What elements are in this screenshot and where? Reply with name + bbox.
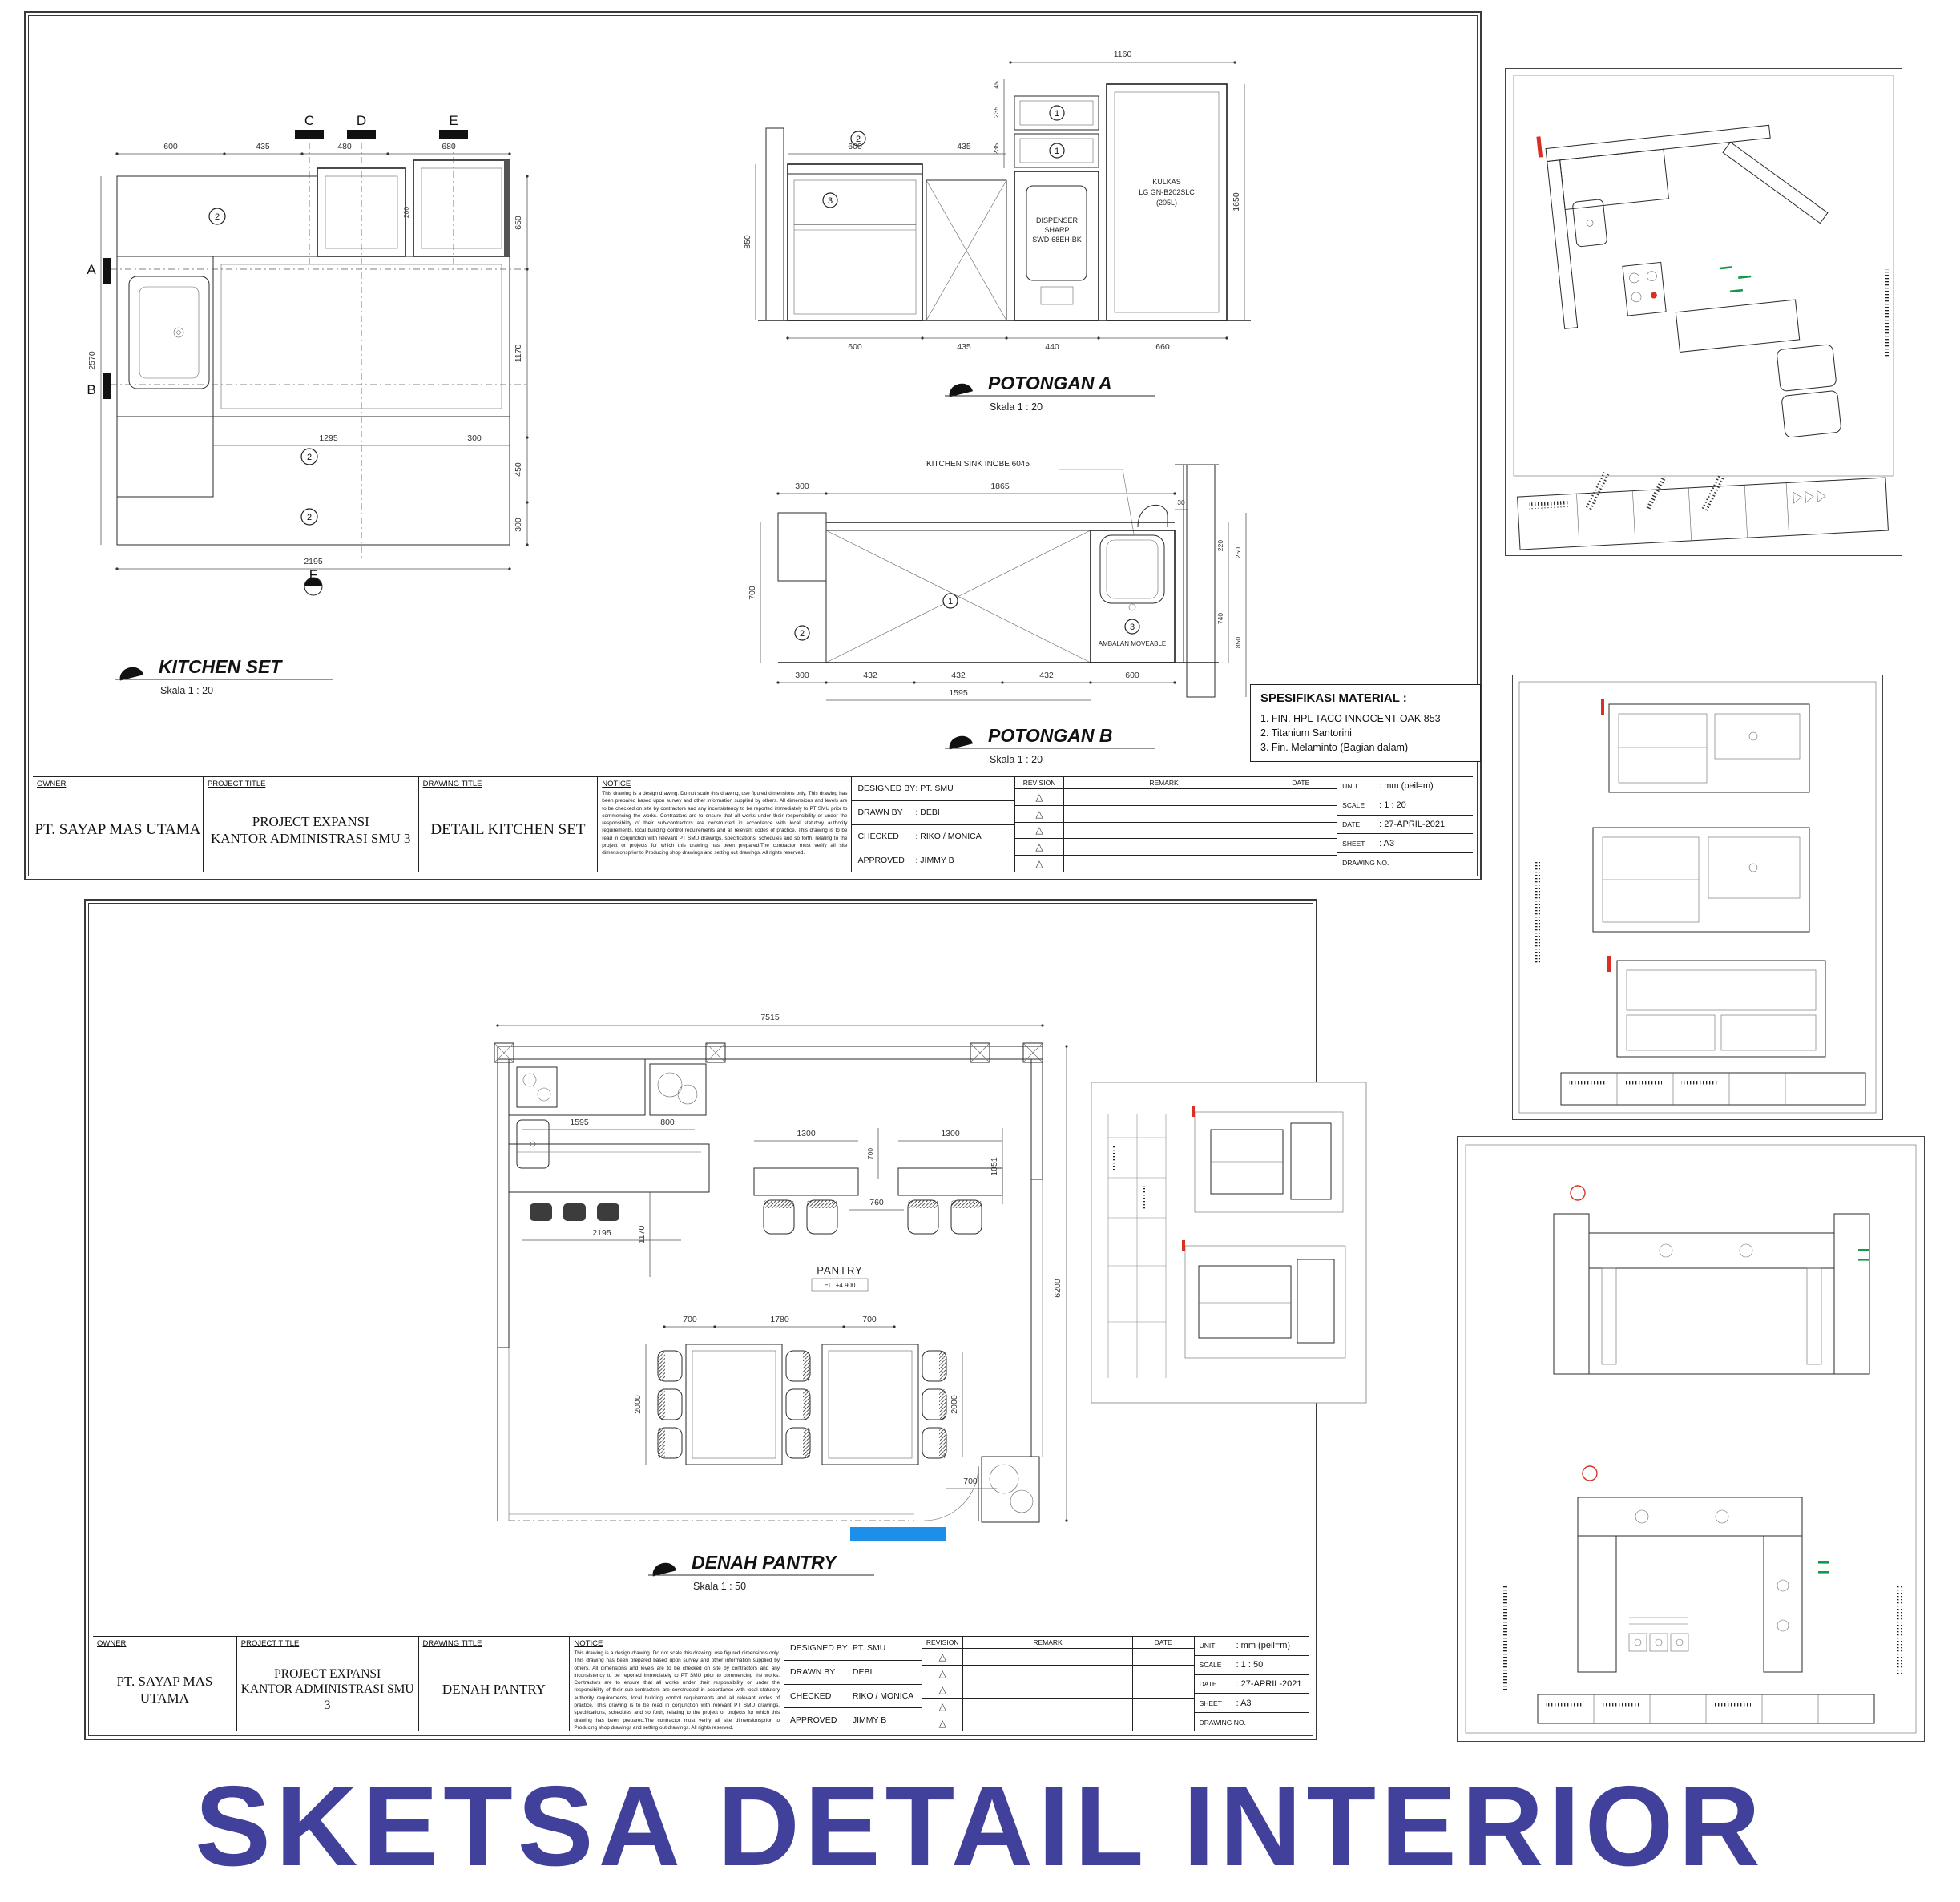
mini-titleblock-strip xyxy=(1538,1694,1874,1723)
project-line2: KANTOR ADMINISTRASI SMU 3 xyxy=(237,1682,418,1713)
drawing-title-value: DENAH PANTRY xyxy=(419,1648,570,1731)
revision-triangle-icon: △ xyxy=(1035,841,1043,852)
unit-label: UNIT xyxy=(1200,1642,1233,1650)
page-title: SKETSA DETAIL INTERIOR xyxy=(0,1761,1960,1892)
svg-text:600: 600 xyxy=(848,342,862,352)
red-circle-marker xyxy=(1583,1466,1597,1481)
svg-text:KULKAS: KULKAS xyxy=(1152,178,1181,186)
fridge-and-chairs xyxy=(1777,345,1841,438)
svg-text:DISPENSER: DISPENSER xyxy=(1036,216,1079,224)
svg-text:B: B xyxy=(87,382,95,397)
checked-value: : RIKO / MONICA xyxy=(848,1691,913,1701)
svg-text:(205L): (205L) xyxy=(1156,199,1177,207)
kitchen-counter xyxy=(509,1059,706,1168)
svg-text:435: 435 xyxy=(957,142,971,151)
svg-text:432: 432 xyxy=(951,671,966,680)
sheet-denah-pantry: 7515 xyxy=(84,899,1317,1740)
approved-label: APPROVED xyxy=(857,856,915,865)
project-title-cell: PROJECT TITLE PROJECT EXPANSI KANTOR ADM… xyxy=(237,1637,419,1731)
date-col-label: DATE xyxy=(1264,777,1337,789)
inset-reference-panel xyxy=(1091,1082,1367,1404)
project-title-label: PROJECT TITLE xyxy=(204,777,418,788)
svg-text:7515: 7515 xyxy=(760,1013,780,1022)
svg-text:1: 1 xyxy=(1055,147,1059,156)
drawing-title-label: DRAWING TITLE xyxy=(419,777,598,788)
plant-box xyxy=(650,1064,706,1115)
project-line1: PROJECT EXPANSI xyxy=(274,1666,381,1682)
mini-titleblock-strip xyxy=(1561,1073,1865,1105)
sheet-label: SHEET xyxy=(1200,1699,1233,1707)
svg-text:600: 600 xyxy=(848,142,862,151)
axon-thumb-bottom xyxy=(1578,1466,1829,1672)
red-label-mark xyxy=(1182,1240,1185,1251)
owner-value: PT. SAYAP MAS UTAMA xyxy=(33,788,203,872)
svg-text:300: 300 xyxy=(467,433,482,443)
svg-text:1295: 1295 xyxy=(319,433,338,443)
side-micro-text xyxy=(1535,860,1540,964)
svg-text:1300: 1300 xyxy=(941,1129,960,1138)
approved-value: : JIMMY B xyxy=(848,1715,886,1725)
svg-text:440: 440 xyxy=(1045,342,1059,352)
date-label: DATE xyxy=(1342,820,1376,828)
notice-text: This drawing is a design drawing. Do not… xyxy=(574,1650,780,1731)
side-micro-text xyxy=(1502,1586,1507,1690)
plant-icon xyxy=(658,1073,682,1097)
stool-icon xyxy=(530,1203,552,1221)
sheet-detail-kitchen-set: C D E A B F 600 435 480 680 xyxy=(24,11,1482,880)
page: C D E A B F 600 435 480 680 xyxy=(0,0,1960,1902)
potongan-a-drawing: DISPENSER SHARP SWD-68EH-BK KULKAS LG GN… xyxy=(738,32,1267,433)
date-col-cell: DATE xyxy=(1264,777,1337,872)
spec-item: 1. FIN. HPL TACO INNOCENT OAK 853 xyxy=(1260,711,1470,726)
date-value: : 27-APRIL-2021 xyxy=(1379,820,1445,829)
svg-text:300: 300 xyxy=(514,518,523,532)
owner-cell: OWNER PT. SAYAP MAS UTAMA xyxy=(93,1637,237,1731)
dining-tables xyxy=(658,1344,946,1465)
svg-text:850: 850 xyxy=(1234,637,1242,648)
meta-cell: UNIT: mm (peil=m) SCALE: 1 : 50 DATE: 27… xyxy=(1195,1637,1309,1731)
tree-icon xyxy=(990,1465,1018,1493)
designed-by-value: : PT. SMU xyxy=(848,1643,885,1653)
walls xyxy=(494,1043,1043,1521)
svg-text:Skala 1 : 50: Skala 1 : 50 xyxy=(693,1581,746,1592)
drawing-no-label: DRAWING NO. xyxy=(1200,1719,1246,1727)
svg-text:KITCHEN SET: KITCHEN SET xyxy=(159,656,283,677)
pier-hatch xyxy=(778,513,826,581)
revision-triangle-icon: △ xyxy=(1035,808,1043,820)
date-value: : 27-APRIL-2021 xyxy=(1236,1679,1302,1689)
svg-text:EL. +4.900: EL. +4.900 xyxy=(825,1282,856,1289)
drawn-by-value: : DEBI xyxy=(915,808,939,817)
svg-text:450: 450 xyxy=(514,462,523,477)
svg-text:600: 600 xyxy=(1125,671,1139,680)
dims-top: 300 1865 30 xyxy=(776,482,1188,510)
side-micro-text xyxy=(1897,1586,1902,1674)
room-label: PANTRY EL. +4.900 xyxy=(812,1264,868,1291)
spec-item: 3. Fin. Melaminto (Bagian dalam) xyxy=(1260,740,1470,755)
svg-text:SHARP: SHARP xyxy=(1044,226,1069,234)
svg-text:AMBALAN MOVEABLE: AMBALAN MOVEABLE xyxy=(1099,640,1166,647)
revision-cell: REVISION △ △ △ △ △ xyxy=(922,1637,963,1731)
kulkas-unit: KULKAS LG GN-B202SLC (205L) xyxy=(1107,84,1227,320)
axon-thumb-top xyxy=(1554,1186,1869,1374)
remark-label: REMARK xyxy=(963,1637,1132,1649)
revision-label: REVISION xyxy=(922,1637,962,1649)
sink-unit: AMBALAN MOVEABLE xyxy=(1091,505,1175,663)
svg-text:1051: 1051 xyxy=(990,1157,999,1176)
svg-text:1: 1 xyxy=(948,597,953,606)
svg-text:700: 700 xyxy=(866,1148,874,1159)
spec-title: SPESIFIKASI MATERIAL : xyxy=(1260,691,1470,705)
svg-text:1170: 1170 xyxy=(637,1226,647,1244)
island xyxy=(509,1144,709,1221)
green-dim-marks xyxy=(1720,264,1752,293)
svg-text:Skala 1 : 20: Skala 1 : 20 xyxy=(990,754,1043,765)
scale-value: : 1 : 20 xyxy=(1379,800,1406,810)
drawn-by-label: DRAWN BY xyxy=(790,1667,848,1677)
project-line2: KANTOR ADMINISTRASI SMU 3 xyxy=(211,830,411,847)
chair-icon xyxy=(658,1351,946,1458)
revision-triangles xyxy=(1793,490,1826,503)
owner-label: OWNER xyxy=(33,777,203,788)
drawer-grid xyxy=(1629,1618,1688,1651)
thumbnail-panel-axonometric xyxy=(1457,1136,1925,1742)
thumbnail-elevations-drawing xyxy=(1513,675,1882,1119)
svg-text:E: E xyxy=(449,113,458,128)
signoff-cell: DESIGNED BY: PT. SMU DRAWN BY: DEBI CHEC… xyxy=(852,777,1015,872)
dim-top: 600 435 480 680 xyxy=(115,142,510,155)
svg-text:2: 2 xyxy=(800,629,805,639)
date-col-cell: DATE xyxy=(1133,1637,1195,1731)
svg-text:2000: 2000 xyxy=(950,1395,959,1414)
svg-text:700: 700 xyxy=(862,1315,877,1324)
designed-by-label: DESIGNED BY xyxy=(790,1643,848,1653)
skewed-titleblock-strip xyxy=(1516,457,1888,550)
svg-text:A: A xyxy=(87,262,96,277)
scale-value: : 1 : 50 xyxy=(1236,1660,1264,1670)
red-label-mark xyxy=(1607,956,1611,972)
callout-markers: 2 2 2 xyxy=(209,208,317,525)
svg-text:200: 200 xyxy=(402,207,410,218)
svg-text:432: 432 xyxy=(1039,671,1054,680)
date-label: DATE xyxy=(1200,1680,1233,1688)
revision-cell: REVISION △ △ △ △ △ xyxy=(1015,777,1063,872)
remark-cell: REMARK xyxy=(963,1637,1133,1731)
checked-label: CHECKED xyxy=(857,832,915,841)
sheet2-frame: 7515 xyxy=(88,903,1313,1736)
revision-triangle-icon: △ xyxy=(1035,858,1043,869)
svg-text:740: 740 xyxy=(1216,613,1224,624)
dims: 1595 800 1300 700 1300 760 1170 1051 219… xyxy=(522,1045,1068,1521)
dim-left: 2570 xyxy=(87,176,101,545)
svg-text:C: C xyxy=(304,113,314,128)
elevation-thumb-2 xyxy=(1593,828,1809,932)
drawing-title-kitchen-set: KITCHEN SET Skala 1 : 20 xyxy=(115,656,333,696)
title-block: OWNER PT. SAYAP MAS UTAMA PROJECT TITLE … xyxy=(93,1636,1309,1731)
red-label-mark xyxy=(1192,1106,1195,1117)
svg-text:700: 700 xyxy=(748,586,757,600)
drawing-title-label: DRAWING TITLE xyxy=(419,1637,570,1648)
revision-label: REVISION xyxy=(1015,777,1063,789)
sheet1-frame: C D E A B F 600 435 480 680 xyxy=(28,15,1478,876)
open-shelf-x xyxy=(926,180,1006,320)
revision-triangle-icon: △ xyxy=(1035,824,1043,836)
tree-icon xyxy=(1010,1490,1033,1513)
svg-text:F: F xyxy=(309,567,317,582)
drawing-title-cell: DRAWING TITLE DENAH PANTRY xyxy=(419,1637,571,1731)
svg-text:1170: 1170 xyxy=(514,345,523,363)
checked-label: CHECKED xyxy=(790,1691,848,1701)
project-line1: PROJECT EXPANSI xyxy=(252,813,369,830)
svg-text:2: 2 xyxy=(307,453,312,462)
door-and-planter xyxy=(924,1457,1039,1522)
thumbnail-axon-drawing xyxy=(1458,1137,1924,1741)
thumbnail-panel-plan-sketch xyxy=(1505,68,1902,556)
wall-hatch xyxy=(766,128,784,320)
planter-box xyxy=(982,1457,1039,1522)
stove-icon xyxy=(517,1067,557,1107)
svg-text:435: 435 xyxy=(957,342,971,352)
svg-text:850: 850 xyxy=(743,235,752,249)
svg-text:2195: 2195 xyxy=(592,1228,611,1238)
svg-text:3: 3 xyxy=(828,196,833,206)
approved-value: : JIMMY B xyxy=(915,856,954,865)
stove-icon xyxy=(1623,262,1666,316)
project-title-label: PROJECT TITLE xyxy=(237,1637,418,1648)
plant-icon xyxy=(678,1085,697,1104)
scale-label: SCALE xyxy=(1342,801,1376,809)
svg-text:600: 600 xyxy=(163,142,178,151)
drawing-title-value: DETAIL KITCHEN SET xyxy=(419,788,598,872)
svg-text:432: 432 xyxy=(863,671,877,680)
owner-cell: OWNER PT. SAYAP MAS UTAMA xyxy=(33,777,204,872)
sheet-value: : A3 xyxy=(1379,839,1394,848)
kitchen-plan-hatch xyxy=(117,176,510,545)
approved-label: APPROVED xyxy=(790,1715,848,1725)
side-micro-text xyxy=(1885,269,1890,357)
revision-triangle-icon: △ xyxy=(939,1651,946,1662)
svg-text:1300: 1300 xyxy=(797,1129,816,1138)
denah-pantry-drawing: 7515 xyxy=(450,1008,1091,1601)
svg-text:435: 435 xyxy=(256,142,270,151)
svg-text:POTONGAN A: POTONGAN A xyxy=(988,373,1112,393)
drawing-title-cell: DRAWING TITLE DETAIL KITCHEN SET xyxy=(419,777,599,872)
owner-value: PT. SAYAP MAS UTAMA xyxy=(93,1648,236,1731)
svg-text:1160: 1160 xyxy=(1114,50,1132,59)
date-col-label: DATE xyxy=(1133,1637,1194,1649)
sheet-label: SHEET xyxy=(1342,840,1376,848)
remark-cell: REMARK xyxy=(1064,777,1265,872)
svg-text:2: 2 xyxy=(307,513,312,522)
svg-text:Skala 1 : 20: Skala 1 : 20 xyxy=(990,401,1043,413)
svg-text:1780: 1780 xyxy=(770,1315,789,1324)
svg-text:1: 1 xyxy=(1055,109,1059,119)
remark-label: REMARK xyxy=(1064,777,1264,789)
notice-cell: NOTICE This drawing is a design drawing.… xyxy=(598,777,852,872)
dims-sides: 700 220 740 250 850 xyxy=(748,513,1246,697)
svg-text:SWD-68EH-BK: SWD-68EH-BK xyxy=(1032,236,1082,244)
revision-triangle-icon: △ xyxy=(1035,792,1043,803)
drawing-title-potongan-b: POTONGAN B Skala 1 : 20 xyxy=(945,725,1155,765)
drawing-title-potongan-a: POTONGAN A Skala 1 : 20 xyxy=(945,373,1155,413)
svg-text:650: 650 xyxy=(514,216,523,230)
notice-label: NOTICE xyxy=(598,777,851,788)
svg-text:45: 45 xyxy=(992,81,1000,89)
svg-text:700: 700 xyxy=(683,1315,697,1324)
svg-text:700: 700 xyxy=(963,1477,978,1486)
sink-icon xyxy=(129,276,209,389)
thumbnail-plan-drawing xyxy=(1506,69,1902,555)
svg-text:30: 30 xyxy=(1177,498,1185,506)
red-label-mark xyxy=(1601,699,1604,715)
svg-text:760: 760 xyxy=(869,1198,884,1207)
material-specification-box: SPESIFIKASI MATERIAL : 1. FIN. HPL TACO … xyxy=(1250,684,1481,762)
svg-text:LG GN-B202SLC: LG GN-B202SLC xyxy=(1139,188,1195,196)
unit-value: : mm (peil=m) xyxy=(1379,781,1434,791)
callout-markers: 1 1 2 3 xyxy=(823,106,1064,208)
revision-triangle-icon: △ xyxy=(939,1718,946,1729)
thumbnail-panel-elevations xyxy=(1512,675,1883,1120)
svg-text:1595: 1595 xyxy=(570,1118,589,1127)
faucet-icon xyxy=(1138,505,1168,527)
stool-icon xyxy=(597,1203,619,1221)
svg-text:Skala 1 : 20: Skala 1 : 20 xyxy=(160,685,213,696)
spec-item: 2. Titanium Santorini xyxy=(1260,726,1470,740)
red-circle-marker xyxy=(1571,1186,1585,1200)
svg-text:KITCHEN SINK INOBE 6045: KITCHEN SINK INOBE 6045 xyxy=(926,460,1030,469)
drawn-by-label: DRAWN BY xyxy=(857,808,915,817)
svg-text:300: 300 xyxy=(795,671,809,680)
svg-text:235: 235 xyxy=(992,107,1000,118)
notice-text: This drawing is a design drawing. Do not… xyxy=(602,790,847,857)
notice-cell: NOTICE This drawing is a design drawing.… xyxy=(570,1637,784,1731)
svg-text:D: D xyxy=(357,113,366,128)
potongan-b-drawing: KITCHEN SINK INOBE 6045 300 1865 30 xyxy=(738,433,1267,769)
notice-label: NOTICE xyxy=(570,1637,784,1648)
owner-label: OWNER xyxy=(93,1637,236,1648)
section-cut-lines xyxy=(111,143,526,561)
svg-text:1865: 1865 xyxy=(990,482,1010,491)
svg-text:800: 800 xyxy=(660,1118,675,1127)
highlight-bar xyxy=(850,1527,946,1541)
svg-text:1595: 1595 xyxy=(949,688,968,698)
upper-cabinets xyxy=(317,160,510,256)
revision-triangle-icon: △ xyxy=(939,1668,946,1679)
svg-text:2570: 2570 xyxy=(87,351,97,370)
designed-by-label: DESIGNED BY xyxy=(857,784,915,793)
svg-text:3: 3 xyxy=(1130,623,1135,632)
sheet-value: : A3 xyxy=(1236,1699,1252,1708)
dims-bottom: 300 432 432 432 600 1595 xyxy=(776,671,1176,700)
svg-text:2195: 2195 xyxy=(304,557,323,566)
project-title-cell: PROJECT TITLE PROJECT EXPANSI KANTOR ADM… xyxy=(204,777,419,872)
svg-text:PANTRY: PANTRY xyxy=(817,1264,863,1276)
rotated-plan-content xyxy=(1536,107,1850,461)
red-label-mark xyxy=(1536,136,1543,157)
revision-triangle-icon: △ xyxy=(939,1701,946,1712)
svg-text:POTONGAN B: POTONGAN B xyxy=(988,725,1112,746)
svg-text:480: 480 xyxy=(337,142,352,151)
checked-value: : RIKO / MONICA xyxy=(915,832,981,841)
meta-cell: UNIT: mm (peil=m) SCALE: 1 : 20 DATE: 27… xyxy=(1337,777,1473,872)
svg-text:DENAH PANTRY: DENAH PANTRY xyxy=(692,1552,838,1573)
designed-by-value: : PT. SMU xyxy=(915,784,953,793)
drawn-by-value: : DEBI xyxy=(848,1667,872,1677)
unit-value: : mm (peil=m) xyxy=(1236,1641,1291,1650)
cabinet-unit xyxy=(788,164,922,320)
scale-label: SCALE xyxy=(1200,1661,1233,1669)
revision-triangle-icon: △ xyxy=(939,1684,946,1695)
title-block: OWNER PT. SAYAP MAS UTAMA PROJECT TITLE … xyxy=(33,776,1473,872)
elevation-thumb-3 xyxy=(1607,956,1825,1057)
signoff-cell: DESIGNED BY: PT. SMU DRAWN BY: DEBI CHEC… xyxy=(784,1637,922,1731)
svg-text:300: 300 xyxy=(795,482,809,491)
svg-text:250: 250 xyxy=(1234,547,1242,558)
dim-top: 7515 xyxy=(496,1013,1043,1027)
drawing-no-label: DRAWING NO. xyxy=(1342,859,1389,867)
svg-text:2000: 2000 xyxy=(633,1395,643,1414)
section-markers: C D E A B F xyxy=(87,113,468,595)
stool-icon xyxy=(563,1203,586,1221)
svg-text:680: 680 xyxy=(442,142,456,151)
unit-label: UNIT xyxy=(1342,782,1376,790)
elevation-thumb-1 xyxy=(1601,699,1809,792)
svg-text:6200: 6200 xyxy=(1053,1279,1063,1298)
kitchen-set-plan-drawing: C D E A B F 600 435 480 680 xyxy=(69,48,614,745)
dispenser-unit: DISPENSER SHARP SWD-68EH-BK xyxy=(1014,96,1099,320)
svg-text:660: 660 xyxy=(1155,342,1170,352)
svg-text:1650: 1650 xyxy=(1232,192,1241,212)
svg-text:220: 220 xyxy=(1216,540,1224,551)
svg-text:2: 2 xyxy=(215,212,220,222)
drawing-title-denah-pantry: DENAH PANTRY Skala 1 : 50 xyxy=(648,1552,874,1592)
svg-text:235: 235 xyxy=(992,143,1000,155)
